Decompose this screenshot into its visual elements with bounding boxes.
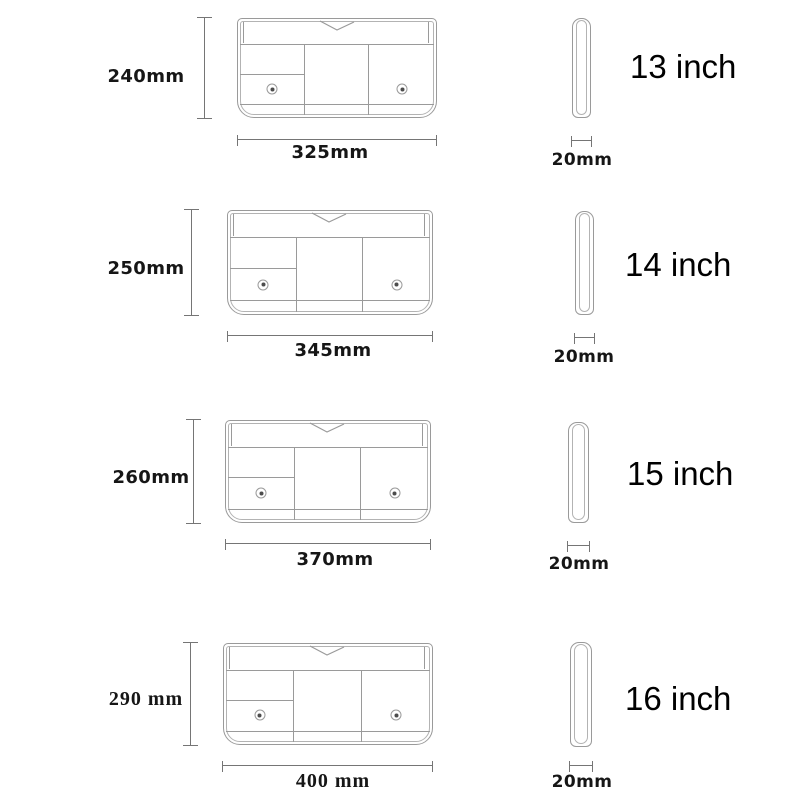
flap-seam-line [240, 44, 434, 45]
height-dimension-label: 250mm [100, 258, 192, 280]
width-dimension-line [225, 543, 431, 544]
height-dimension-line [204, 18, 205, 118]
side-inner-outline [572, 424, 585, 520]
sleeve-side-view [568, 422, 589, 523]
sleeve-side-view [572, 18, 591, 118]
snap-button-left [254, 710, 265, 721]
snap-button-left [258, 279, 269, 290]
flap-notch [309, 422, 345, 434]
flap-right-edge [428, 22, 429, 43]
snap-button-right [389, 488, 400, 499]
side-inner-outline [576, 20, 587, 115]
thickness-dimension-label: 20mm [549, 346, 619, 368]
thickness-dimension-label: 20mm [547, 771, 617, 793]
flap-notch [311, 212, 347, 224]
flap-notch [319, 20, 355, 32]
thickness-dimension-label: 20mm [547, 149, 617, 171]
side-inner-outline [574, 644, 588, 744]
width-dimension-line [227, 335, 433, 336]
flap-left-edge [233, 214, 234, 236]
sleeve-front-view [227, 210, 433, 315]
flap-left-edge [229, 647, 230, 669]
front-pocket-seam [226, 700, 293, 701]
size-label: 16 inch [625, 682, 731, 715]
front-pocket-seam [240, 74, 304, 75]
bottom-seam-line [240, 104, 434, 105]
size-label: 15 inch [627, 457, 733, 490]
snap-button-left [256, 488, 267, 499]
flap-seam-line [230, 237, 430, 238]
width-dimension-line [237, 139, 437, 140]
flap-seam-line [226, 670, 430, 671]
flap-right-edge [422, 424, 423, 446]
flap-right-edge [424, 214, 425, 236]
sleeve-inner-outline [226, 646, 430, 742]
height-dimension-label: 240mm [100, 66, 192, 88]
height-dimension-label: 290 mm [100, 688, 192, 710]
bottom-seam-line [228, 509, 428, 510]
sleeve-inner-outline [230, 213, 430, 312]
snap-button-right [391, 710, 402, 721]
size-label: 14 inch [625, 248, 731, 281]
front-pocket-seam [228, 477, 294, 478]
width-dimension-label: 400 mm [258, 770, 408, 792]
sleeve-front-view [237, 18, 437, 118]
width-dimension-label: 345mm [258, 340, 408, 362]
thickness-dimension-line [569, 765, 593, 766]
bottom-seam-line [230, 300, 430, 301]
width-dimension-label: 325mm [255, 142, 405, 164]
sleeve-side-view [575, 211, 594, 315]
snap-button-left [267, 84, 278, 95]
snap-button-right [391, 279, 402, 290]
thickness-dimension-line [574, 337, 595, 338]
sleeve-front-view [225, 420, 431, 523]
flap-right-edge [424, 647, 425, 669]
thickness-dimension-line [571, 140, 592, 141]
flap-notch [309, 645, 345, 657]
size-label: 13 inch [630, 50, 736, 83]
height-dimension-label: 260mm [105, 467, 197, 489]
sleeve-side-view [570, 642, 592, 747]
flap-left-edge [231, 424, 232, 446]
width-dimension-line [222, 765, 433, 766]
flap-seam-line [228, 447, 428, 448]
sleeve-inner-outline [228, 423, 428, 520]
thickness-dimension-line [567, 545, 590, 546]
width-dimension-label: 370mm [260, 549, 410, 571]
bottom-seam-line [226, 731, 430, 732]
flap-left-edge [243, 22, 244, 43]
sleeve-inner-outline [240, 21, 434, 115]
side-inner-outline [579, 213, 590, 312]
sleeve-front-view [223, 643, 433, 745]
laptop-sleeve-size-diagram: 240mm 325mm 20mm 13 inch 250mm [0, 0, 800, 800]
snap-button-right [397, 84, 408, 95]
thickness-dimension-label: 20mm [544, 553, 614, 575]
front-pocket-seam [230, 268, 296, 269]
